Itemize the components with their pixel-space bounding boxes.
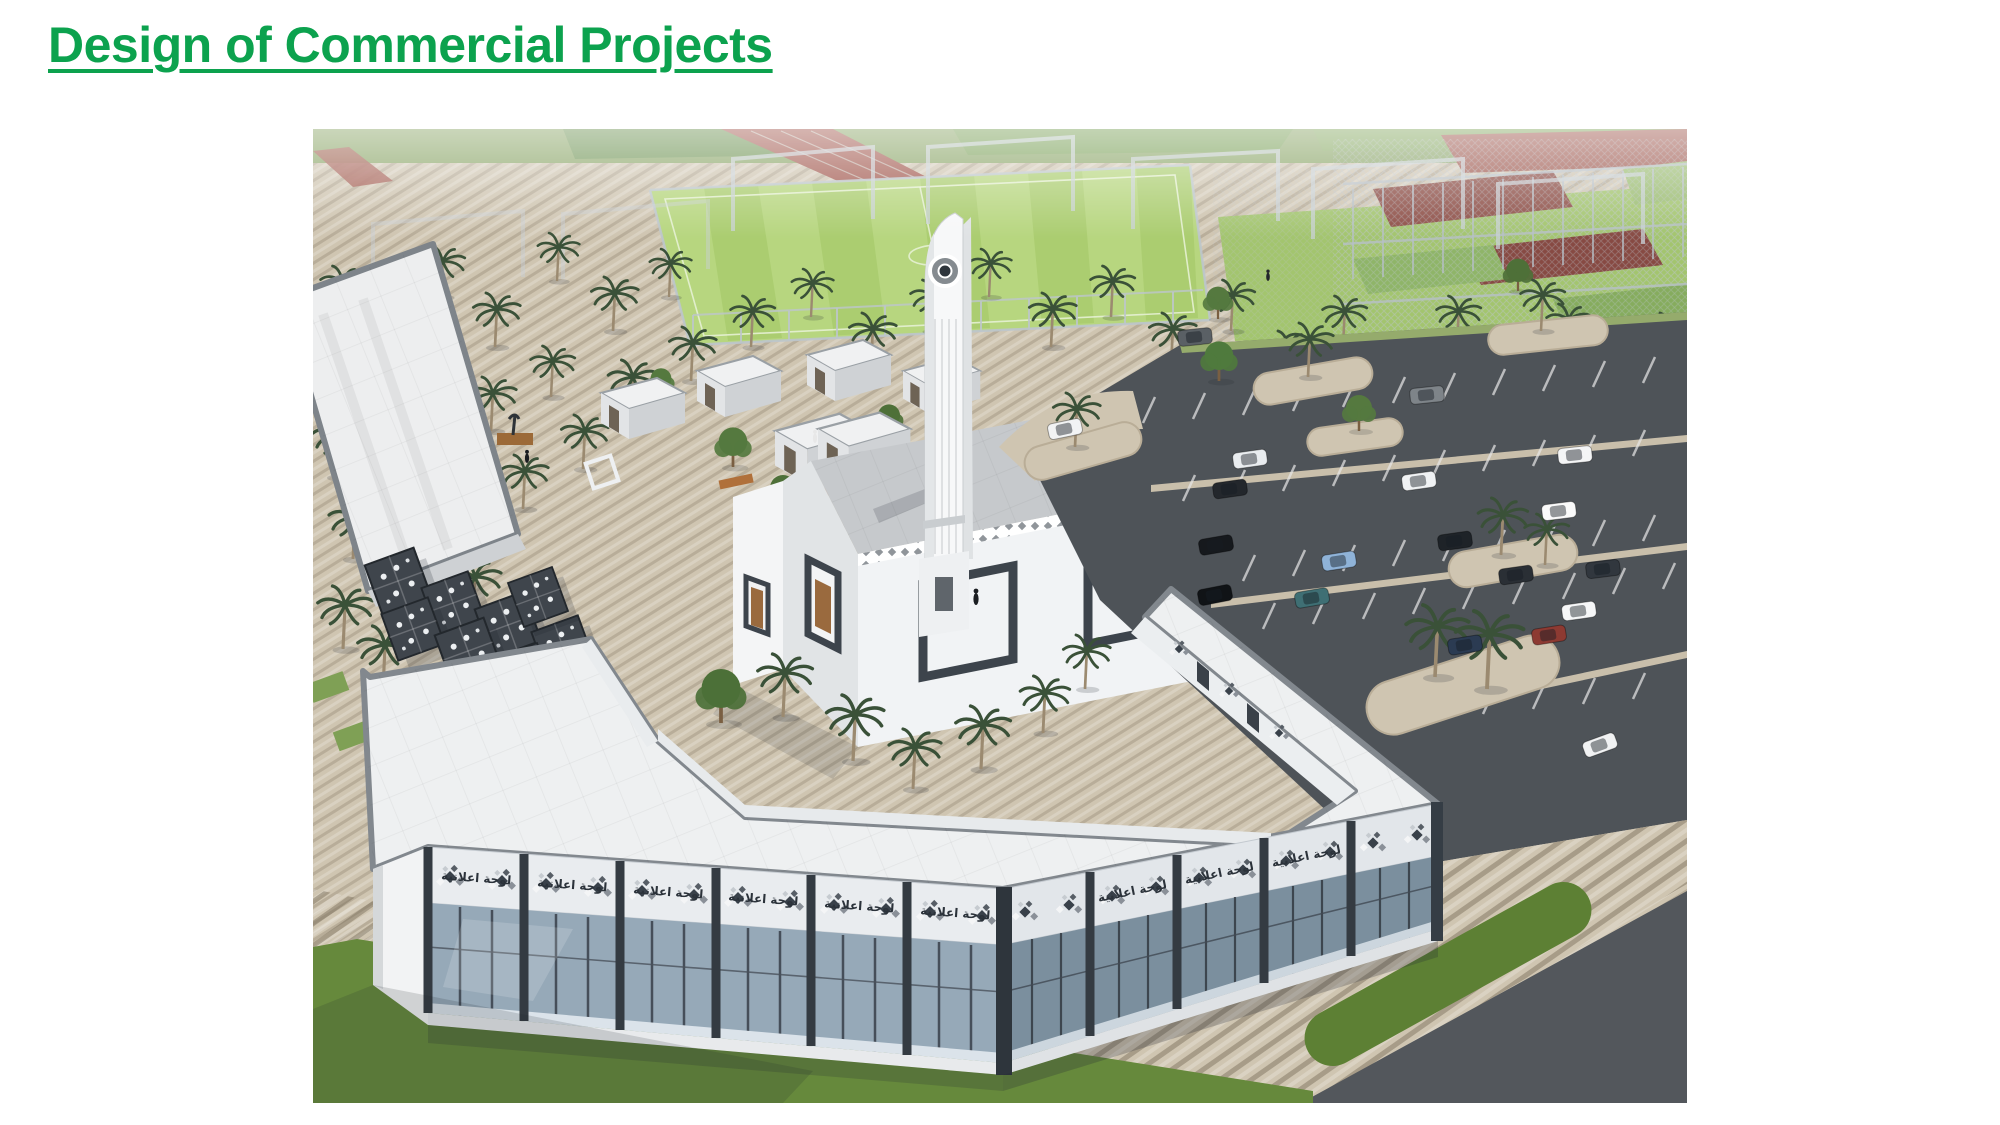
mosque-side-door (751, 587, 763, 629)
minaret-niche (935, 577, 953, 611)
commercial-complex-aerial-render: لوحة اعلانية لوحة اعلانية لوحة اعلانية ل… (313, 129, 1687, 1103)
minaret-clock-tower (919, 213, 973, 637)
mosque-entrance-door (815, 579, 831, 634)
page-title: Design of Commercial Projects (48, 16, 773, 74)
presentation-slide: Design of Commercial Projects (0, 0, 2000, 1125)
architectural-render-image: لوحة اعلانية لوحة اعلانية لوحة اعلانية ل… (313, 129, 1687, 1103)
haze-overlay (313, 129, 1687, 239)
clock-face (939, 265, 952, 278)
